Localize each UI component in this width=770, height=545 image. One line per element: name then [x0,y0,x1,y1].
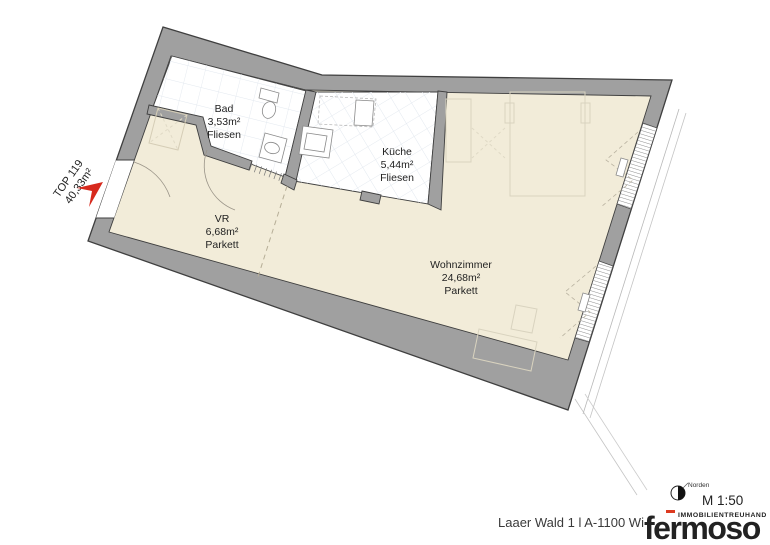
address-text: Laaer Wald 1 l A-1100 Wi [498,515,644,530]
room-label-bad-floor: Fliesen [207,129,241,141]
scale-text: M 1:50 [702,493,743,508]
room-label-kueche-floor: Fliesen [380,172,414,184]
room-label-vr-area: 6,68m² [206,226,239,238]
unit-label: TOP 119 40,33m² [51,158,96,207]
room-label-wohnzimmer-name: Wohnzimmer [430,259,492,271]
room-label-kueche-name: Küche [382,146,412,158]
kitchen-sink-bowl [304,133,327,152]
room-label-vr-name: VR [215,213,230,225]
logo-brand: fermoso [644,510,761,545]
floorplan-page: Bad 3,53m² Fliesen Küche 5,44m² Fliesen … [0,0,770,545]
floorplan-canvas: Bad 3,53m² Fliesen Küche 5,44m² Fliesen … [0,0,770,545]
stove-symbol [354,100,374,126]
room-label-wohnzimmer-area: 24,68m² [442,272,481,284]
compass-label: Norden [688,482,710,489]
room-label-bad-name: Bad [215,103,234,115]
north-compass-icon [671,483,688,500]
room-label-bad-area: 3,53m² [208,116,241,128]
room-label-kueche-area: 5,44m² [381,159,414,171]
room-label-vr-floor: Parkett [205,239,238,251]
room-label-wohnzimmer-floor: Parkett [444,285,477,297]
fermoso-logo: IMMOBILIENTREUHAND fermoso [644,510,767,545]
